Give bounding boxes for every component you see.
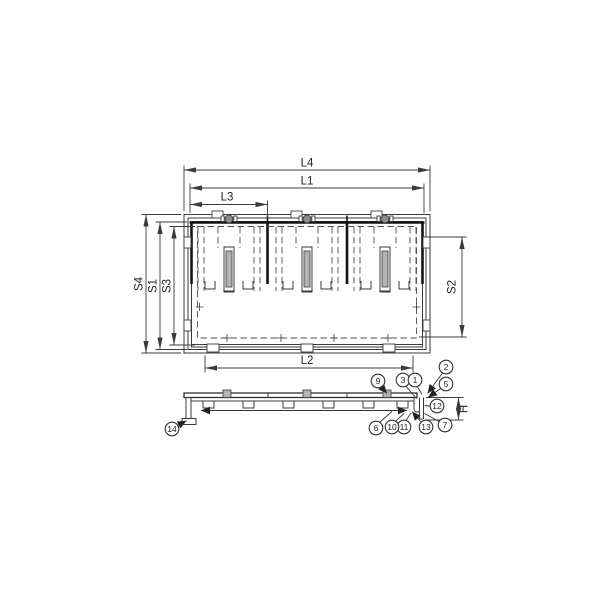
dim-label-l1: L1 [301, 176, 314, 188]
latch-section-3 [383, 390, 391, 398]
callout-11-label: 11 [400, 422, 409, 432]
callout-11: 11 [397, 413, 411, 434]
dim-label-s4: S4 [134, 276, 146, 291]
callout-9-label: 9 [376, 376, 381, 386]
latch-section-2 [303, 390, 311, 398]
frame-ribs [203, 401, 408, 408]
left-end-frame [186, 398, 191, 419]
technical-drawing: L4 L1 L3 L2 S4 [0, 0, 600, 600]
callout-9: 9 [371, 374, 387, 393]
plan-view [184, 211, 430, 353]
callout-2-label: 2 [444, 362, 449, 372]
drawing-canvas: L4 L1 L3 L2 S4 [0, 0, 600, 600]
callout-12-label: 12 [432, 401, 442, 411]
latch-section-1 [223, 390, 231, 398]
callout-1-label: 1 [413, 375, 418, 385]
dim-label-h: H [459, 405, 471, 413]
callout-12: 12 [425, 399, 444, 413]
section-view [182, 390, 424, 425]
callout-6-label: 6 [374, 423, 379, 433]
callout-13: 13 [412, 412, 433, 434]
left-end-foot [182, 419, 196, 425]
callout-14-label: 14 [167, 424, 177, 434]
dim-label-s2: S2 [447, 280, 459, 294]
cover-plate-section [184, 393, 417, 398]
dim-label-s3: S3 [162, 279, 174, 293]
callout-10-label: 10 [387, 422, 397, 432]
dim-label-l3: L3 [221, 192, 234, 204]
callout-3-label: 3 [401, 375, 406, 385]
dim-label-l2: L2 [301, 355, 314, 367]
callout-13-label: 13 [421, 422, 431, 432]
callout-7-label: 7 [443, 420, 448, 430]
dim-label-l4: L4 [301, 158, 314, 170]
callout-5-label: 5 [444, 379, 449, 389]
callout-14: 14 [165, 421, 186, 436]
center-marks [196, 303, 421, 342]
dim-label-s1: S1 [148, 279, 160, 293]
dim-l2: L2 [205, 355, 413, 373]
